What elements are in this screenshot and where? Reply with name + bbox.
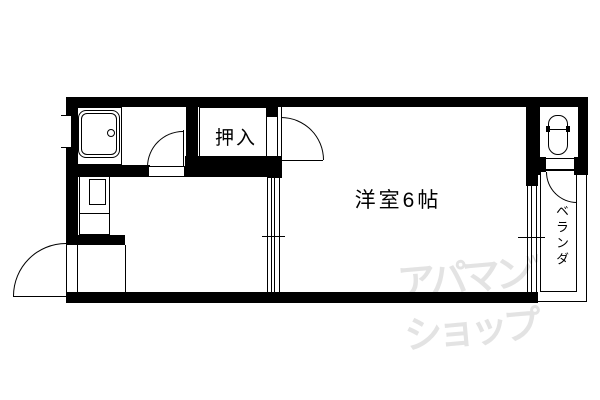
main-room-label: 洋室6帖: [346, 184, 450, 214]
wall-top: [66, 97, 588, 107]
utility-unit-inner-box: [89, 179, 106, 205]
entrance-step-line: [125, 245, 126, 292]
balcony-label: ベランダ: [552, 204, 571, 286]
wall-toilet-bottom-left: [530, 157, 546, 172]
main-room-door-leaf: [281, 160, 323, 161]
wall-kitchen-bottom: [66, 165, 150, 177]
window-line-2: [531, 186, 532, 292]
toilet-icon: [548, 115, 568, 155]
toilet-hinge-left: [546, 126, 550, 132]
wall-bottom: [66, 292, 538, 303]
closet-label: 押入: [205, 123, 267, 150]
kitchen-door-leaf: [183, 130, 184, 167]
kitchen-window-notch: [61, 115, 71, 148]
sliding-door-tick: [262, 236, 285, 237]
wall-main-door-stub-bottom: [267, 156, 281, 178]
window-line-3: [536, 186, 537, 292]
toilet-hinge-right: [566, 126, 570, 132]
veranda-outer-right: [586, 172, 587, 302]
wall-entrance-bar: [66, 235, 125, 245]
sliding-door-line-3: [274, 178, 275, 292]
toilet-door-threshold: [546, 158, 574, 170]
window-line-1: [527, 186, 528, 292]
entrance-door-leaf: [13, 296, 66, 297]
floor-plan-canvas: アパマン w ショップ: [0, 0, 600, 400]
sink-drain-icon: [107, 129, 115, 137]
veranda-outer-bottom: [538, 301, 587, 302]
sliding-door-line-2: [271, 178, 272, 292]
entrance-door-swing-arc: [13, 243, 66, 296]
kitchen-door-threshold: [148, 166, 185, 177]
entrance-opening-outer-edge: [66, 244, 67, 292]
watermark-line2: ショップ: [402, 293, 538, 359]
wall-main-door-stub-top: [267, 107, 277, 117]
kitchen-door-swing-arc: [147, 131, 183, 167]
sliding-door-line-4: [279, 178, 280, 292]
entrance-opening-inner-edge: [77, 244, 78, 292]
toilet-tank-line: [548, 129, 568, 130]
sliding-door-line-1: [267, 178, 268, 292]
utility-unit-divider: [79, 213, 110, 214]
main-room-door-swing-arc: [281, 117, 324, 160]
wall-kitchen-closet-divider: [186, 107, 198, 177]
